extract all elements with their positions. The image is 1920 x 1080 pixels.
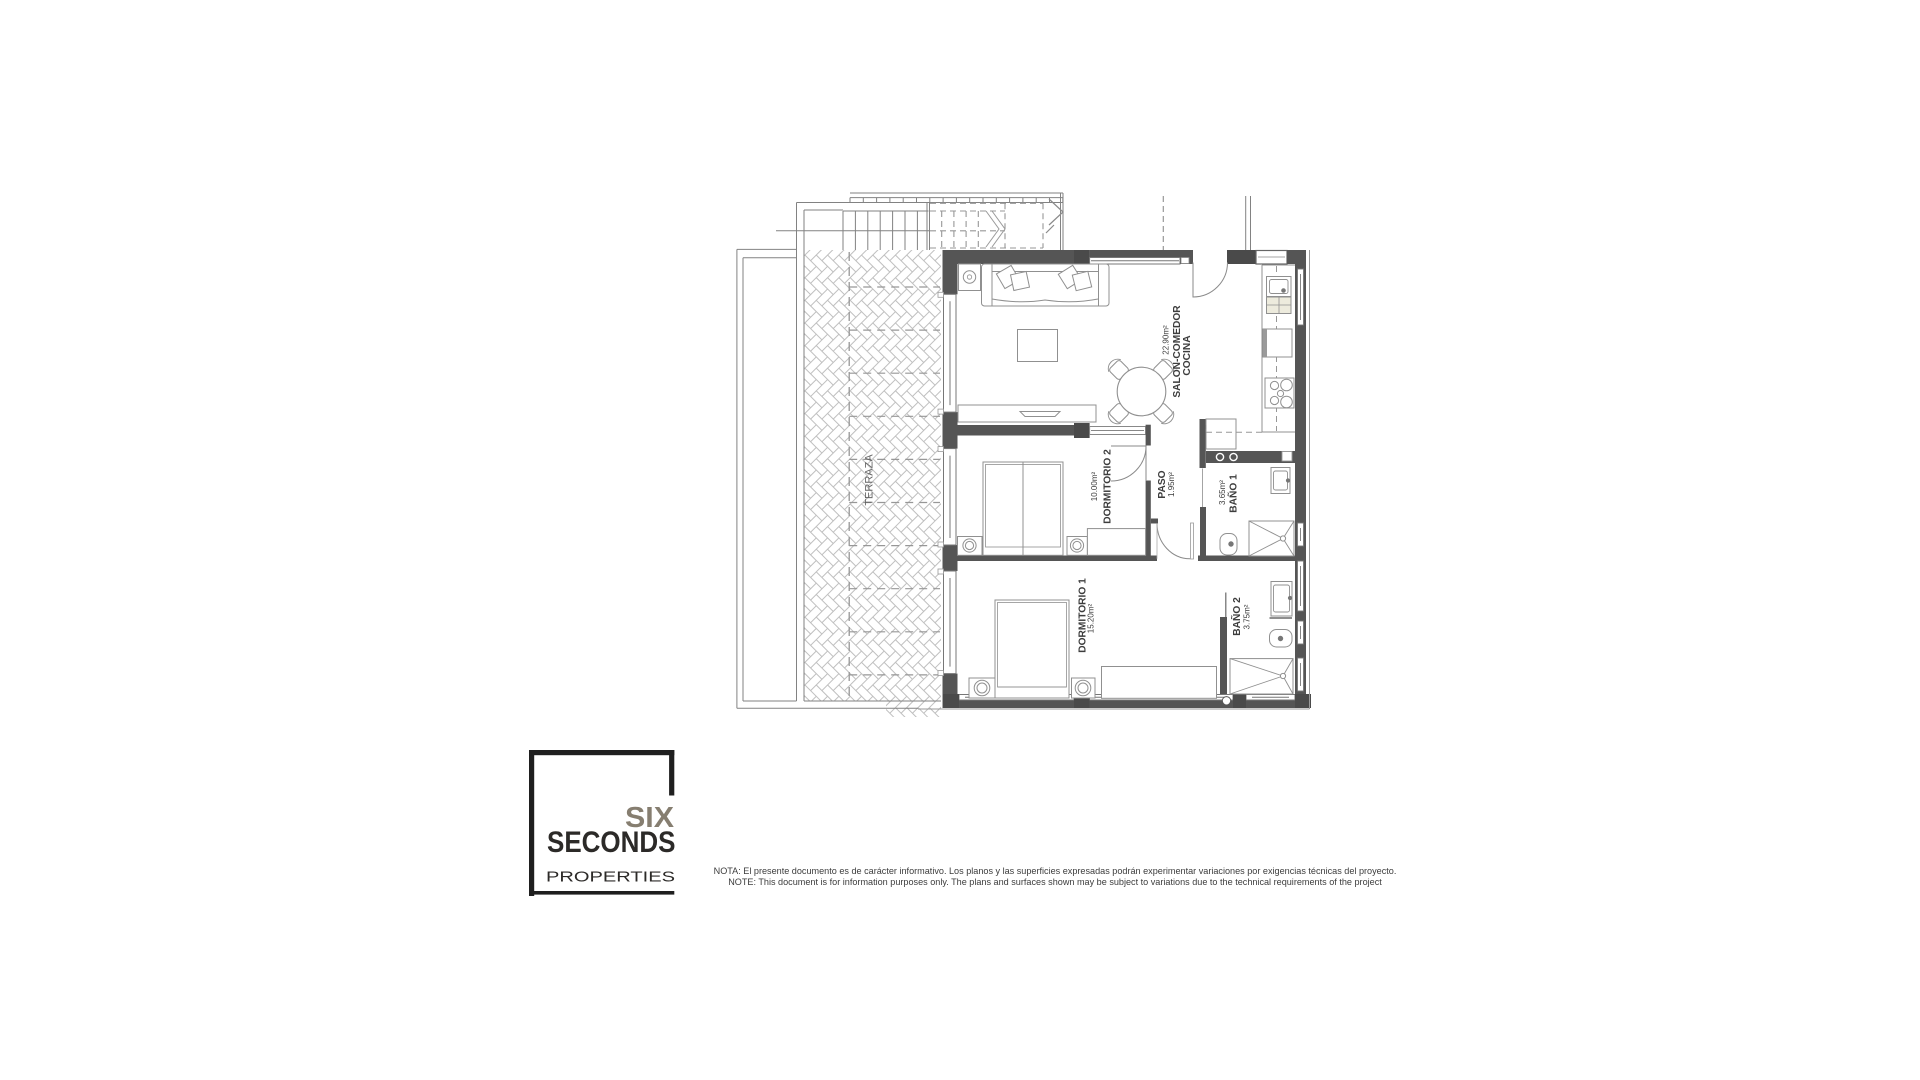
svg-text:COCINA: COCINA	[1182, 335, 1193, 376]
svg-text:1.95m²: 1.95m²	[1167, 472, 1176, 497]
svg-text:DORMITORIO 2: DORMITORIO 2	[1103, 449, 1114, 524]
svg-text:SECONDS: SECONDS	[547, 826, 676, 859]
svg-text:3.75m²: 3.75m²	[1243, 604, 1252, 629]
svg-text:BAÑO 1: BAÑO 1	[1227, 474, 1240, 513]
svg-text:TERRAZA: TERRAZA	[863, 454, 875, 506]
svg-text:PROPERTIES: PROPERTIES	[546, 869, 675, 886]
svg-text:22.90m²: 22.90m²	[1162, 325, 1171, 355]
svg-text:3.65m²: 3.65m²	[1218, 480, 1227, 505]
svg-text:10.00m²: 10.00m²	[1090, 471, 1099, 501]
svg-text:15.20m²: 15.20m²	[1087, 603, 1096, 633]
svg-text:BAÑO 2: BAÑO 2	[1230, 597, 1243, 636]
